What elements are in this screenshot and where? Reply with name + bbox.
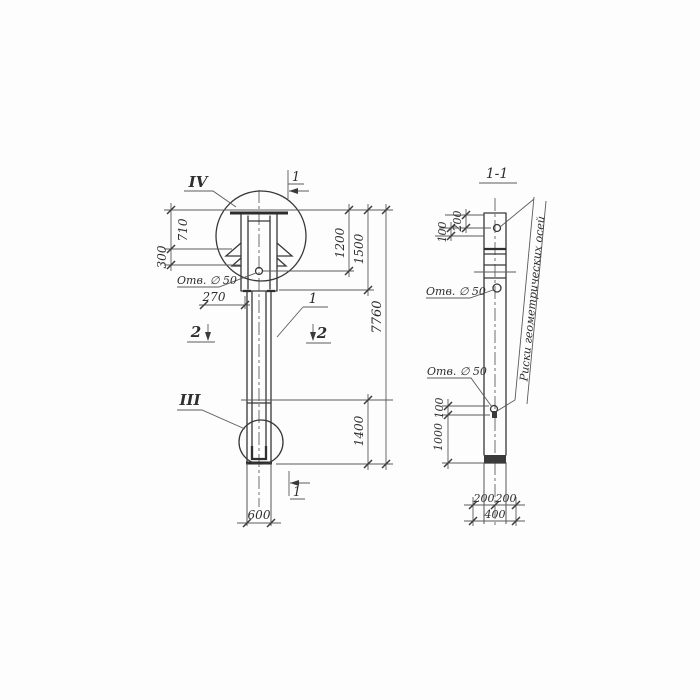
hole-mid-section: [493, 284, 501, 292]
hole-callout-elevation: Отв. ∅ 50: [177, 274, 237, 287]
hole-callout-mid: Отв. ∅ 50: [426, 285, 486, 298]
dim-300: 300: [155, 245, 169, 268]
dim-7760: 7760: [370, 300, 385, 333]
dim-270: 270: [202, 290, 226, 304]
technical-drawing: IV III 1 1 2 2 1 Отв. ∅ 50 710 300 270 1…: [0, 0, 700, 700]
axis-mark: [492, 411, 497, 418]
section-mark-top: 1: [292, 170, 300, 185]
dim-100-top: 100: [436, 222, 449, 243]
dim-200-bottom-right: 200: [495, 492, 517, 505]
drawing-page: IV III 1 1 2 2 1 Отв. ∅ 50 710 300 270 1…: [0, 0, 700, 700]
dim-1400: 1400: [352, 415, 366, 446]
section-arrowheads: [205, 188, 316, 486]
detail-circle-bottom: [239, 420, 283, 464]
section-mark-left: 2: [190, 323, 201, 341]
section-mark-bottom: 1: [293, 485, 301, 500]
item-position-label: 1: [309, 291, 318, 307]
detail-iv-label: IV: [188, 173, 209, 191]
dim-400: 400: [484, 508, 506, 521]
hole-top-section: [494, 225, 501, 232]
dim-710: 710: [176, 218, 190, 241]
dim-1500: 1500: [352, 233, 366, 264]
dim-200-top: 200: [451, 211, 464, 233]
detail-iii-label: III: [178, 391, 201, 409]
geometric-axes-note: Риски геометрических осей: [517, 215, 547, 382]
dim-600: 600: [248, 508, 271, 522]
dim-100-mid: 100: [433, 398, 446, 419]
dim-1200: 1200: [333, 227, 347, 258]
dim-1000: 1000: [432, 423, 445, 451]
elevation-view: IV III 1 1 2 2 1 Отв. ∅ 50 710 300 270 1…: [155, 170, 393, 527]
section-bottom-band: [484, 455, 506, 463]
section-mark-right: 2: [316, 324, 327, 342]
section-view: 1-1 200 100 Отв. ∅ 50 Отв. ∅ 50 100 1000…: [426, 166, 548, 527]
dim-200-bottom-left: 200: [473, 492, 495, 505]
hole-callout-low: Отв. ∅ 50: [427, 365, 487, 378]
section-1-1-title: 1-1: [486, 166, 509, 182]
